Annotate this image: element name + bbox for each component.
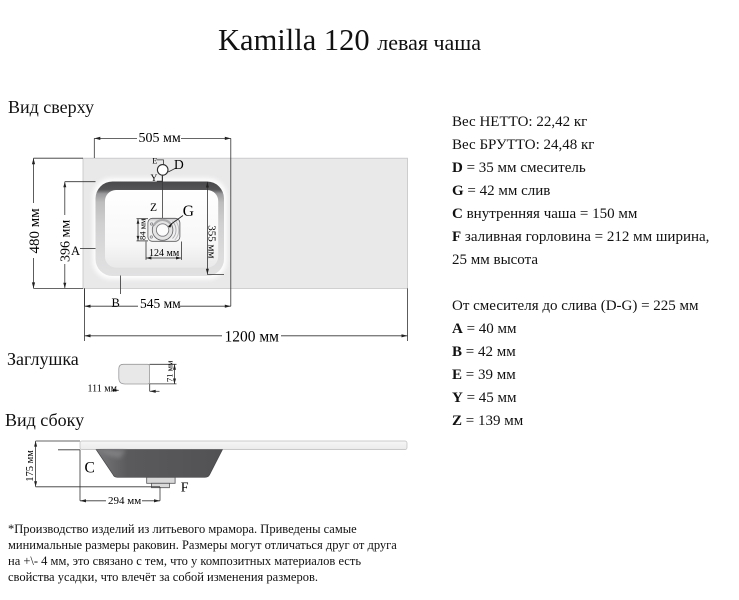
svg-text:F: F xyxy=(181,481,189,496)
svg-text:71 мм: 71 мм xyxy=(165,360,175,382)
svg-text:294 мм: 294 мм xyxy=(108,495,141,507)
svg-text:B: B xyxy=(112,296,120,310)
svg-text:Y: Y xyxy=(151,174,158,184)
svg-text:G: G xyxy=(183,203,194,220)
svg-text:1200 мм: 1200 мм xyxy=(225,329,280,346)
svg-text:175 мм: 175 мм xyxy=(25,450,36,482)
svg-text:Z: Z xyxy=(150,202,157,214)
svg-text:C: C xyxy=(85,460,95,477)
svg-text:355 мм: 355 мм xyxy=(206,225,218,258)
svg-text:E: E xyxy=(152,155,157,165)
svg-text:480 мм: 480 мм xyxy=(27,208,43,254)
svg-text:111 мм: 111 мм xyxy=(88,384,118,395)
svg-text:124 мм: 124 мм xyxy=(149,248,180,259)
svg-text:84 мм: 84 мм xyxy=(137,218,147,240)
svg-text:505 мм: 505 мм xyxy=(139,131,181,146)
svg-text:A: A xyxy=(71,244,80,258)
svg-text:545 мм: 545 мм xyxy=(140,296,181,311)
svg-text:D: D xyxy=(174,157,184,172)
